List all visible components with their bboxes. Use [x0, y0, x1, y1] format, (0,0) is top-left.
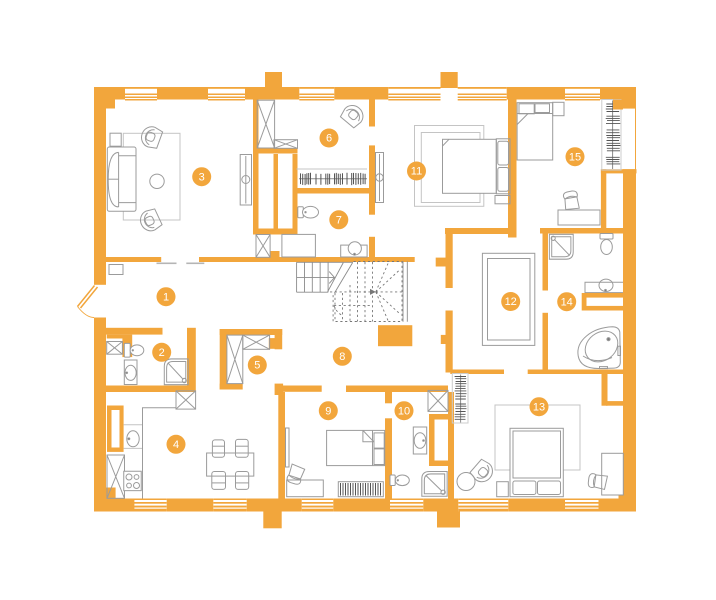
svg-text:13: 13	[533, 401, 545, 413]
svg-text:2: 2	[159, 347, 165, 359]
svg-text:6: 6	[326, 133, 332, 145]
svg-text:15: 15	[569, 151, 581, 163]
svg-text:7: 7	[336, 215, 342, 227]
svg-text:4: 4	[173, 439, 179, 451]
svg-text:14: 14	[561, 296, 573, 308]
svg-text:3: 3	[199, 171, 205, 183]
svg-text:12: 12	[505, 296, 517, 308]
svg-text:9: 9	[325, 405, 331, 417]
svg-text:8: 8	[339, 351, 345, 363]
svg-text:11: 11	[411, 166, 422, 178]
svg-text:10: 10	[398, 405, 410, 417]
svg-text:1: 1	[163, 291, 169, 303]
svg-text:5: 5	[254, 360, 260, 372]
